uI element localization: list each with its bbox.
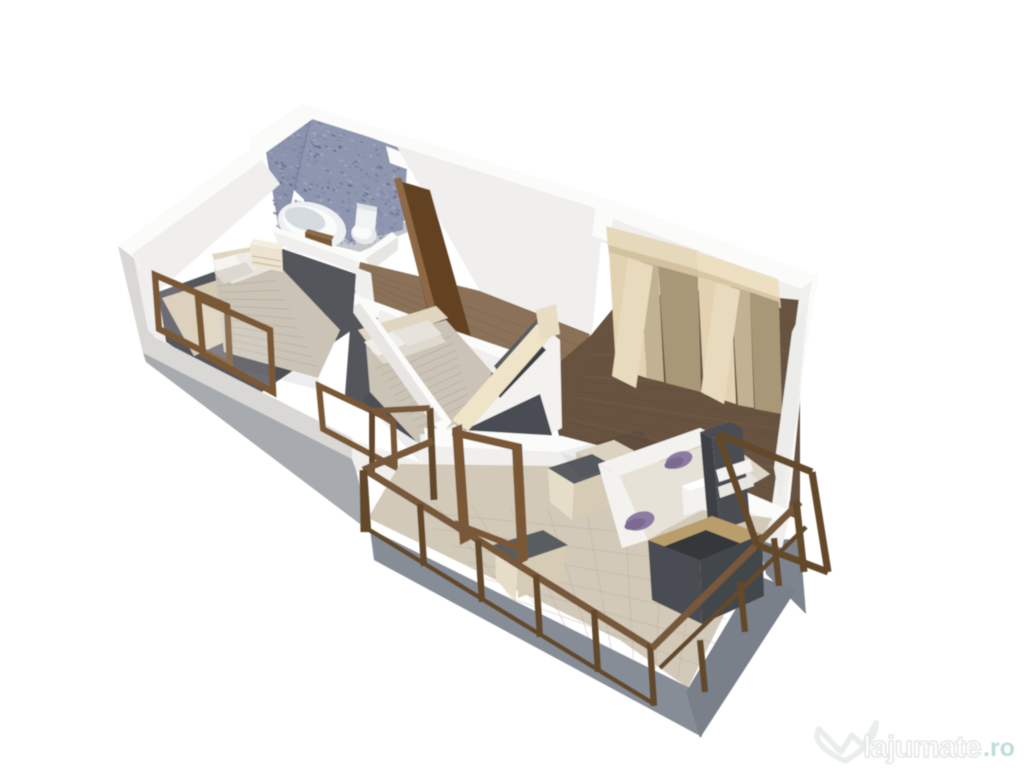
svg-text:.ro: .ro bbox=[983, 734, 1015, 762]
svg-text:lajumate: lajumate bbox=[863, 729, 982, 764]
